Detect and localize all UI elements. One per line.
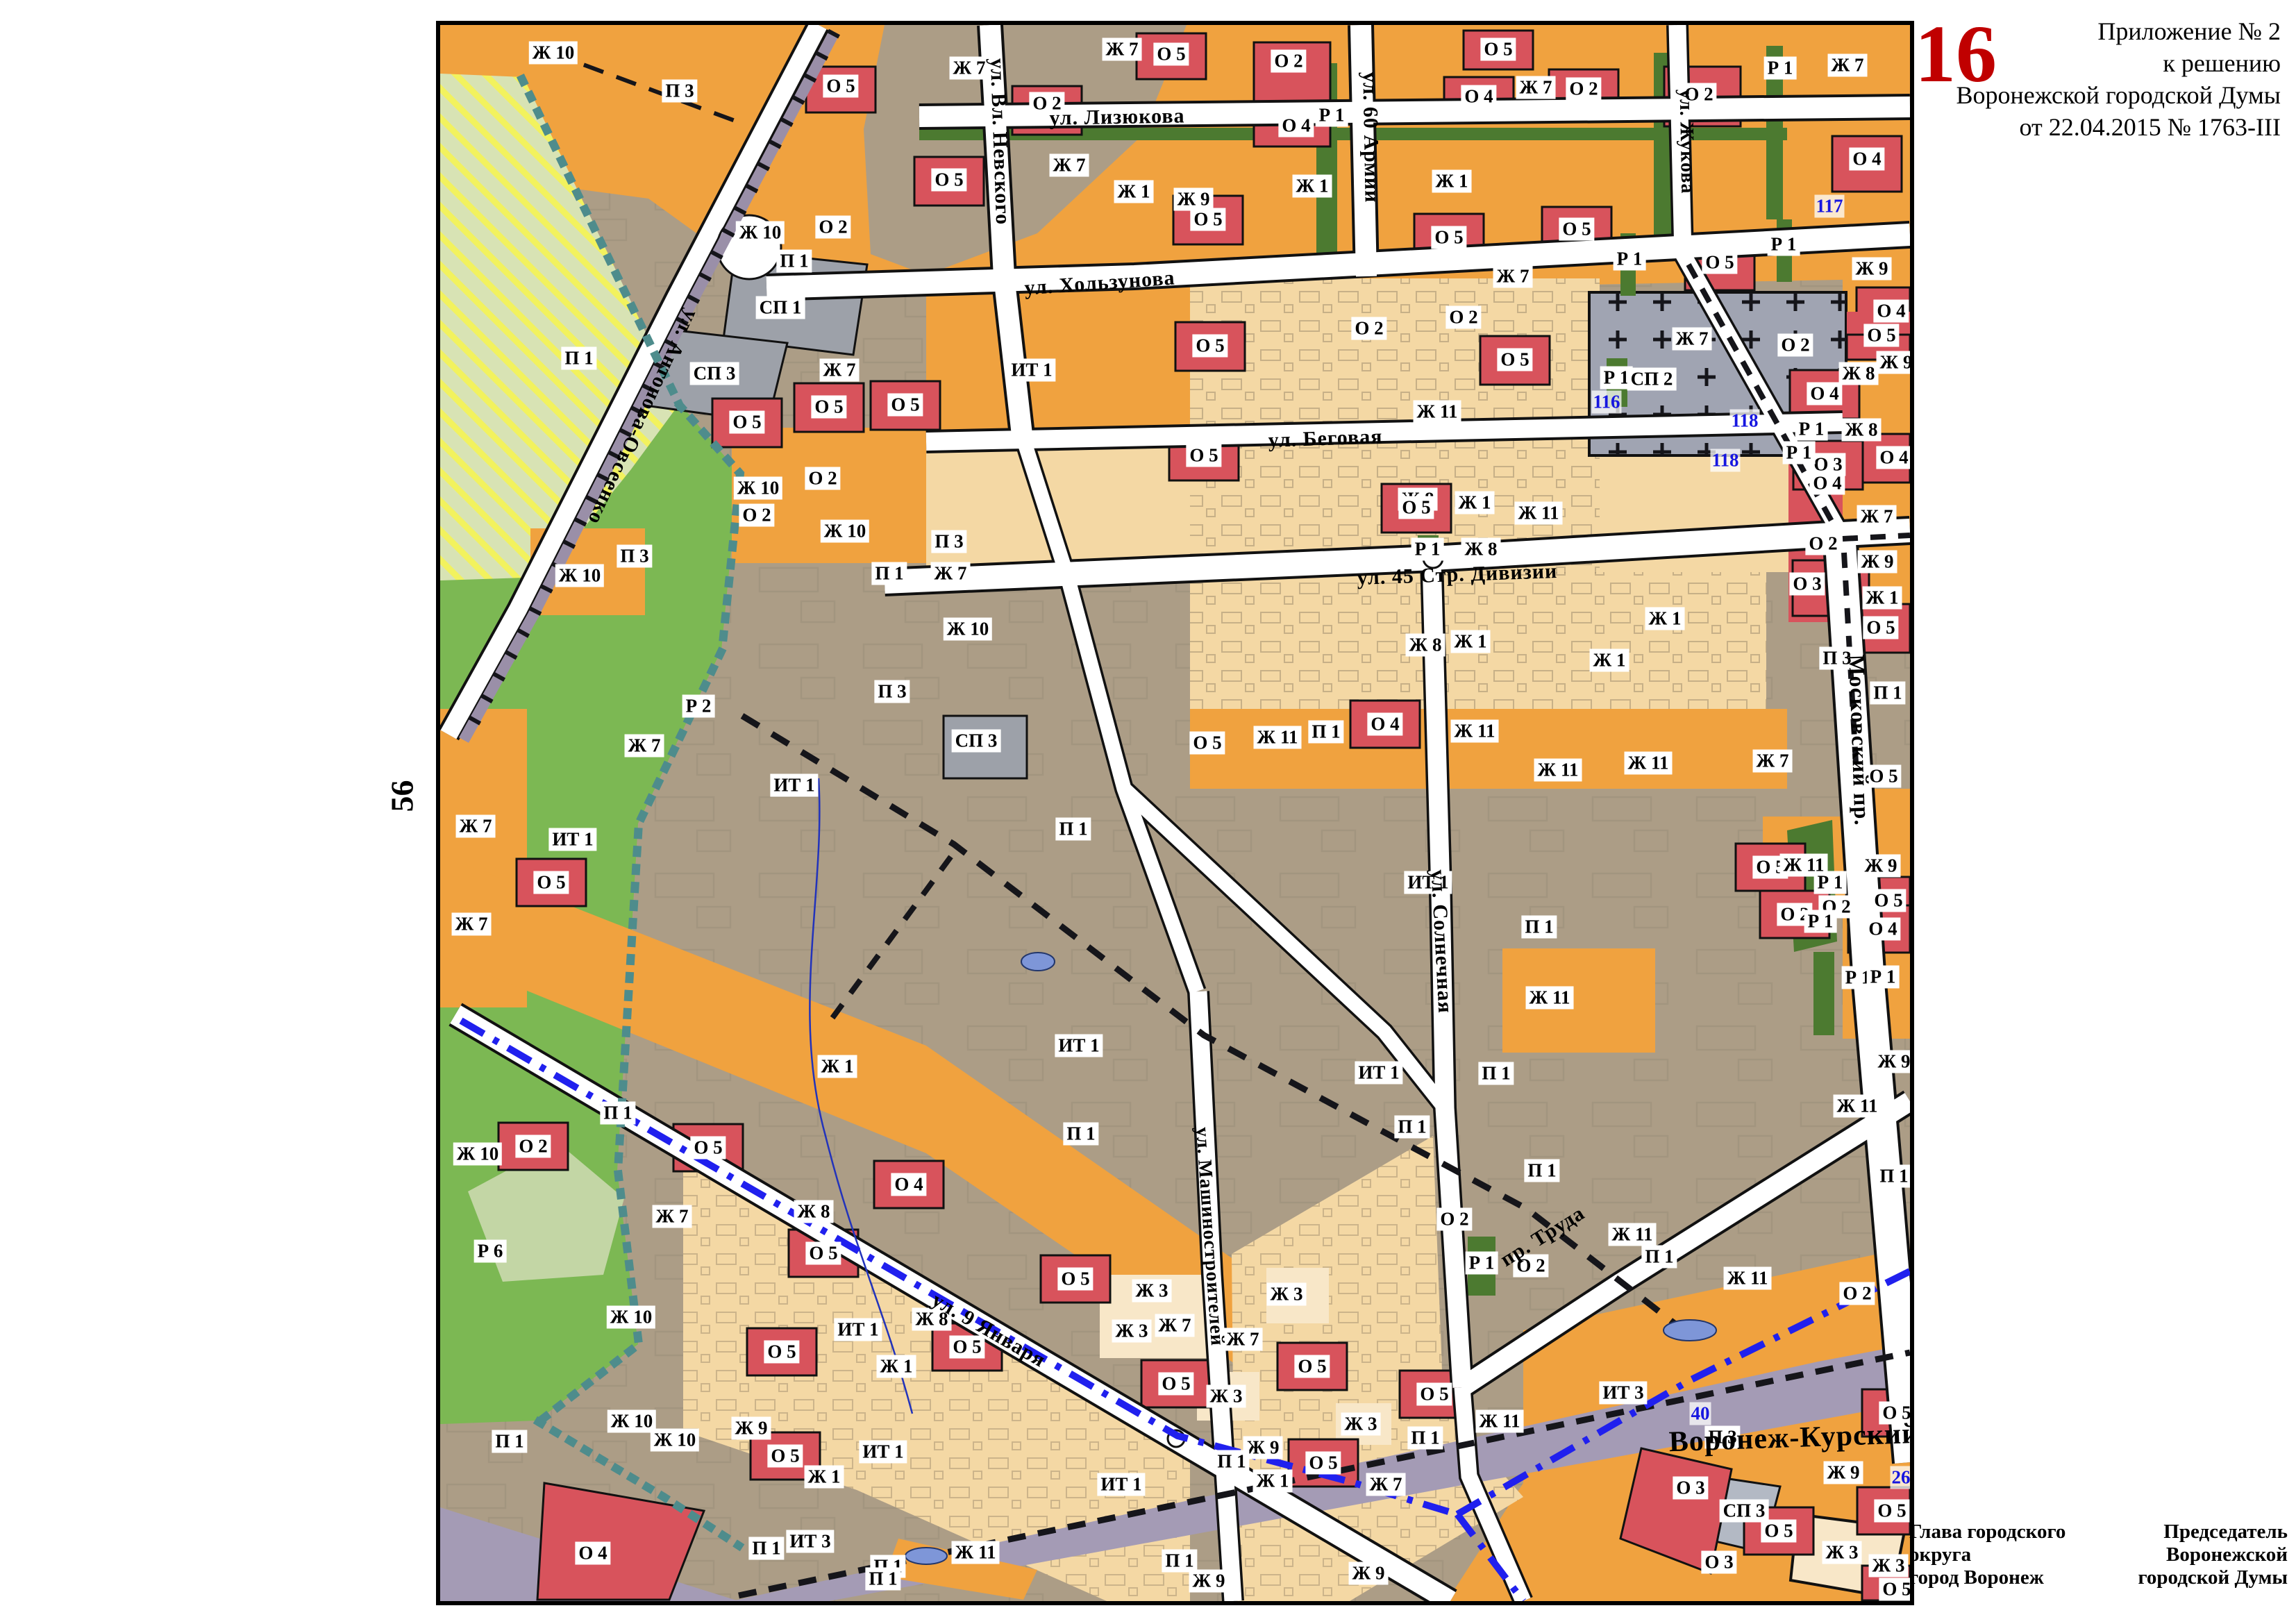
chairman-name: В.Ф.Ходырев: [2128, 1621, 2288, 1624]
mayor-name: А.В.Гусев: [1909, 1621, 2118, 1624]
title-line-4: от 22.04.2015 № 1763-III: [1892, 111, 2281, 143]
chairman-role: Председатель Воронежской городской Думы: [2114, 1521, 2288, 1589]
title-line-2: к решению: [1892, 47, 2281, 79]
page-title: Приложение № 2 к решению Воронежской гор…: [1892, 15, 2281, 143]
mayor-role: Глава городского округа город Воронеж: [1909, 1521, 2104, 1589]
title-line-1: Приложение № 2: [1892, 15, 2281, 47]
map-canvas: Ж 10П 3О 5Ж 7О 2Ж 7О 5О 2О 4Р 1О 4О 5Ж 7…: [436, 21, 1914, 1605]
margin-sheet-number: 56: [384, 780, 421, 812]
signature-block: Глава городского округа город Воронеж Пр…: [1909, 1521, 2288, 1624]
title-line-3: Воронежской городской Думы: [1892, 79, 2281, 111]
zoning-map-sheet: Ж 10П 3О 5Ж 7О 2Ж 7О 5О 2О 4Р 1О 4О 5Ж 7…: [0, 0, 2296, 1624]
map-drawing: [440, 25, 1910, 1601]
